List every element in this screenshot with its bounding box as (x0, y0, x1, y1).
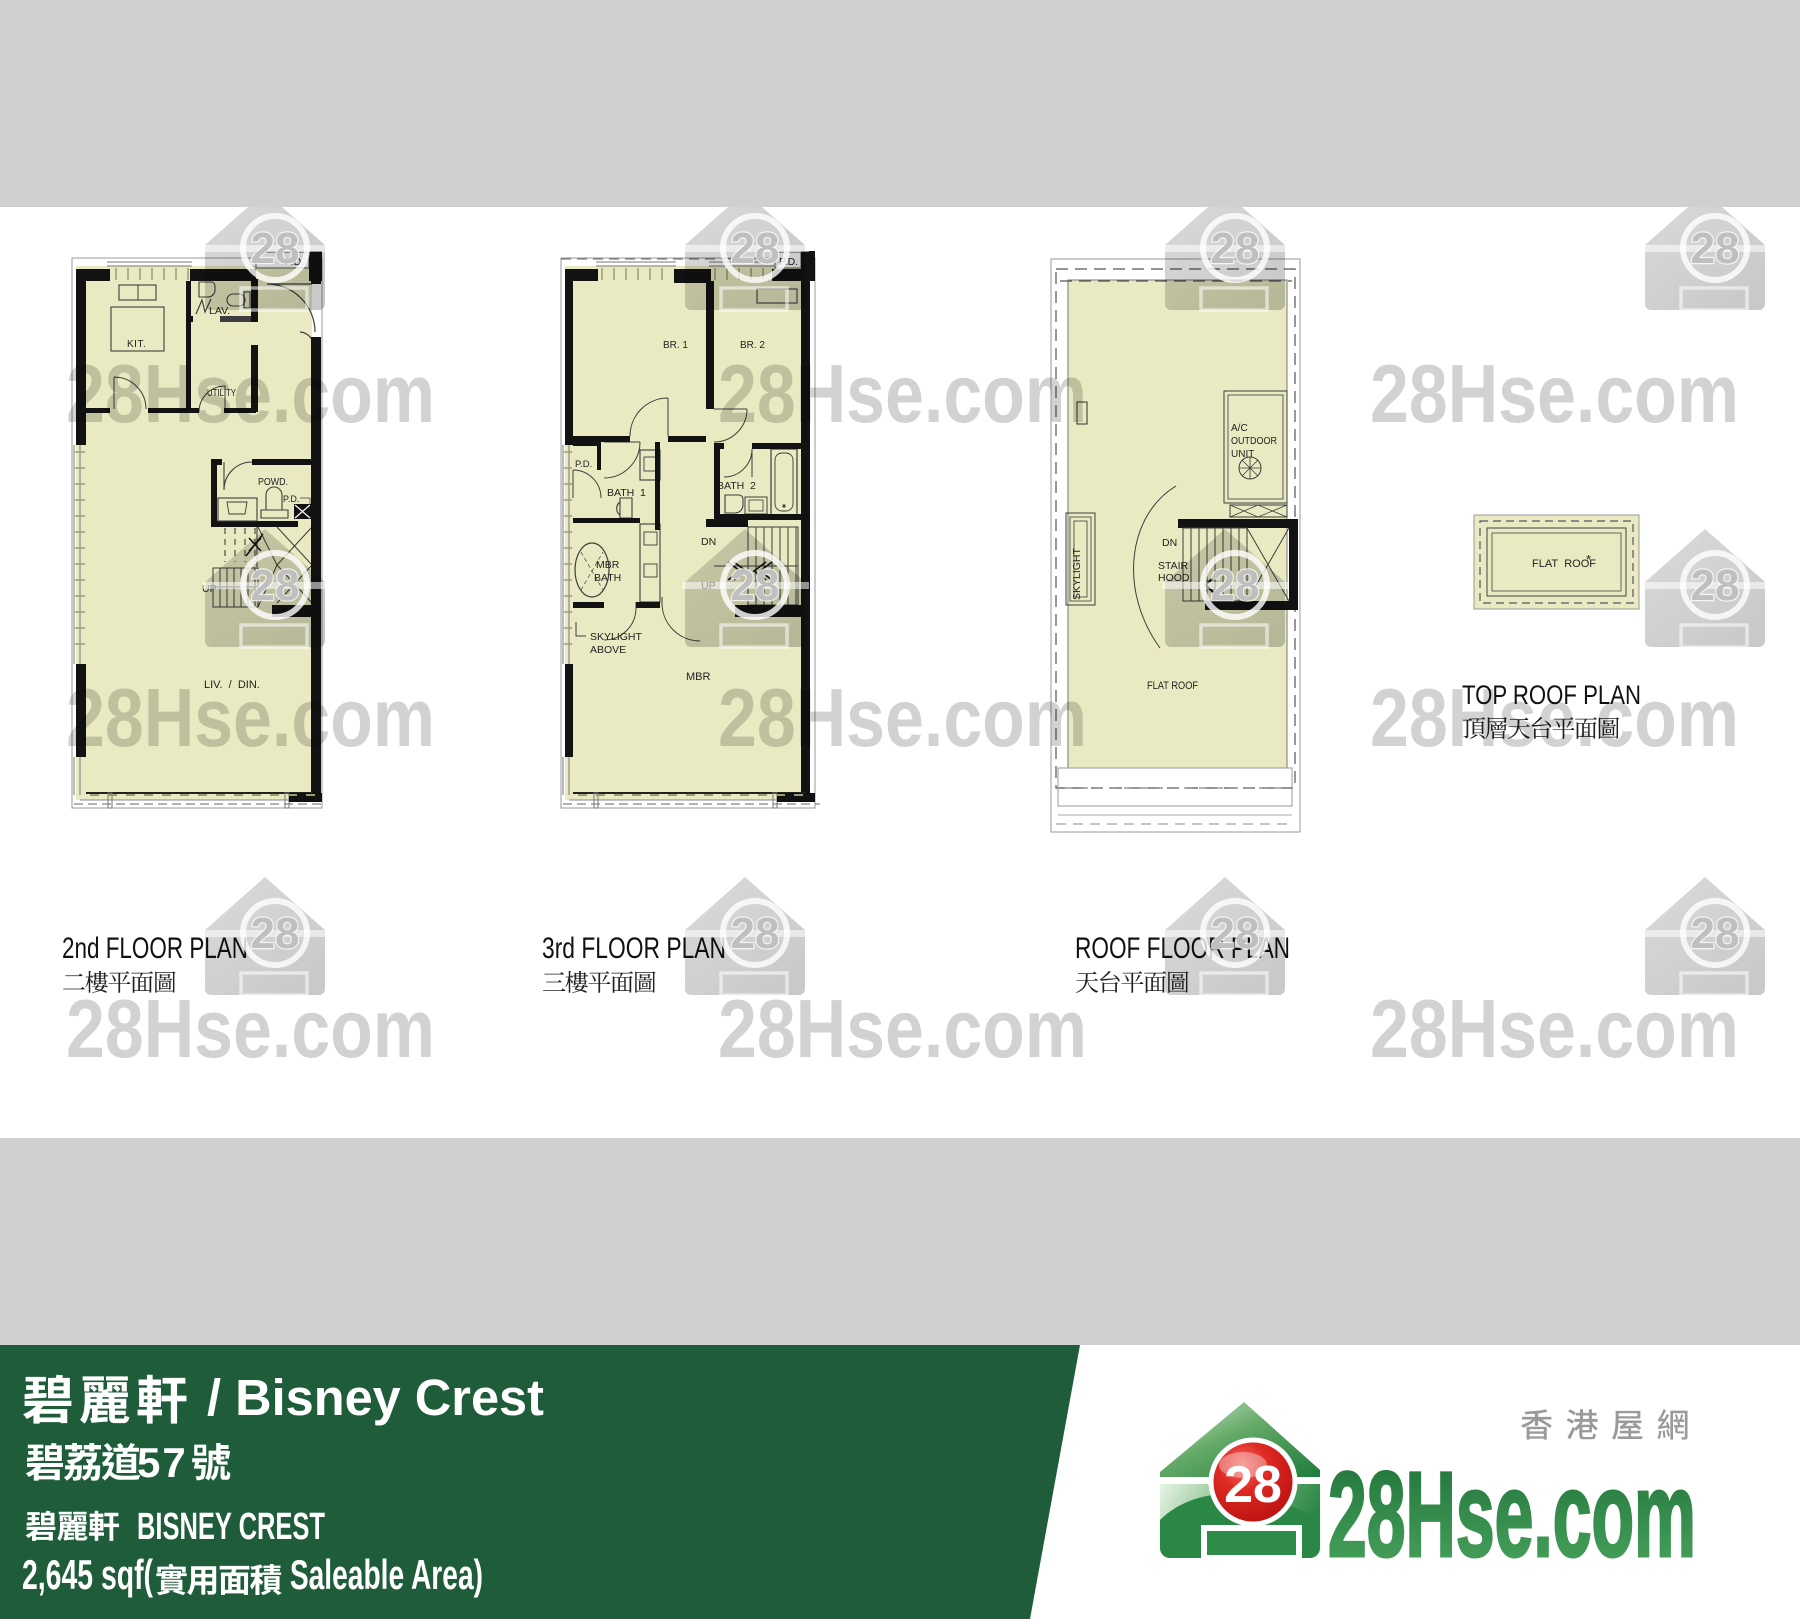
svg-text:28: 28 (1691, 224, 1740, 273)
svg-text:28: 28 (1211, 561, 1260, 610)
svg-text:Saleable Area): Saleable Area) (282, 1551, 483, 1598)
svg-text:BISNEY CREST: BISNEY CREST (137, 1506, 325, 1548)
svg-text:*: * (1586, 552, 1591, 567)
svg-text:28Hse.com: 28Hse.com (1328, 1446, 1696, 1582)
svg-text:SKYLIGHT: SKYLIGHT (590, 631, 643, 643)
svg-text:28: 28 (731, 224, 780, 273)
svg-text:28Hse.com: 28Hse.com (718, 671, 1087, 764)
svg-text:28Hse.com: 28Hse.com (718, 347, 1087, 440)
svg-text:28: 28 (1211, 224, 1260, 273)
svg-text:OUTDOOR: OUTDOOR (1231, 436, 1277, 447)
svg-text:DN: DN (1162, 537, 1177, 549)
svg-text:28: 28 (1224, 1456, 1282, 1514)
svg-text:DN: DN (701, 536, 716, 548)
svg-text:28: 28 (251, 561, 300, 610)
svg-text:BATH 2: BATH 2 (717, 480, 756, 492)
svg-text:57: 57 (137, 1439, 188, 1486)
svg-text:28: 28 (731, 909, 780, 958)
svg-text:BATH 1: BATH 1 (607, 487, 646, 499)
svg-text:P.D.: P.D. (283, 494, 299, 504)
svg-text:28Hse.com: 28Hse.com (66, 347, 435, 440)
svg-text:MBR: MBR (686, 671, 711, 683)
svg-text:28: 28 (1691, 909, 1740, 958)
svg-text:UNIT: UNIT (1231, 449, 1254, 460)
svg-text:ABOVE: ABOVE (590, 644, 626, 656)
svg-text:A/C: A/C (1231, 423, 1248, 434)
svg-text:28: 28 (731, 561, 780, 610)
svg-text:BR. 1: BR. 1 (663, 339, 688, 351)
svg-text:28: 28 (251, 224, 300, 273)
svg-text:SKYLIGHT: SKYLIGHT (1071, 547, 1083, 600)
svg-text:28: 28 (251, 909, 300, 958)
svg-text:28Hse.com: 28Hse.com (1370, 671, 1739, 764)
svg-text:FLAT ROOF: FLAT ROOF (1147, 680, 1198, 692)
svg-text:P.D.: P.D. (575, 459, 592, 470)
svg-text:28Hse.com: 28Hse.com (66, 671, 435, 764)
svg-text:28Hse.com: 28Hse.com (1370, 347, 1739, 440)
svg-text:/ Bisney Crest: / Bisney Crest (207, 1369, 544, 1426)
svg-text:28: 28 (1211, 909, 1260, 958)
svg-text:2,645 sqf(: 2,645 sqf( (22, 1551, 153, 1598)
svg-text:POWD.: POWD. (258, 476, 288, 488)
svg-text:28: 28 (1691, 561, 1740, 610)
svg-text:BATH: BATH (594, 572, 621, 584)
svg-text:MBR: MBR (596, 559, 620, 571)
